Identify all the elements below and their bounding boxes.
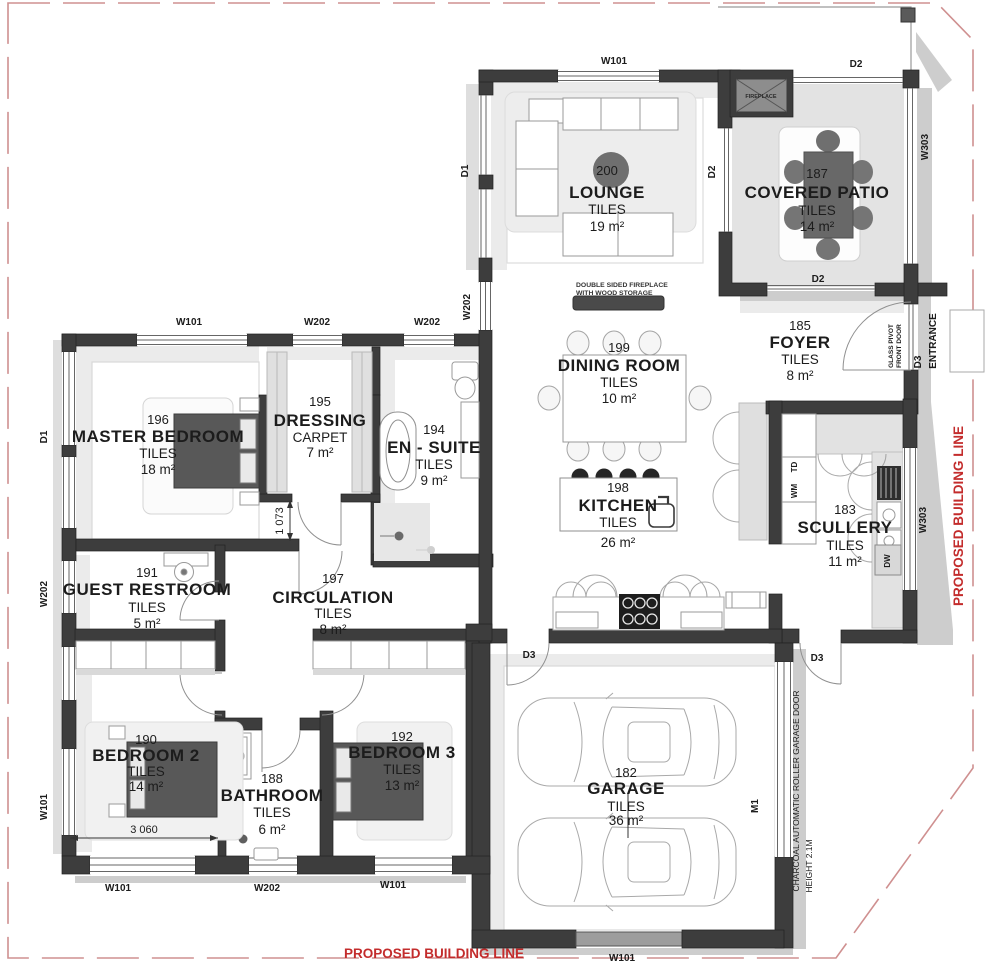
- svg-text:W101: W101: [380, 880, 407, 891]
- svg-text:11 m²: 11 m²: [828, 554, 862, 569]
- svg-text:TILES: TILES: [314, 606, 352, 621]
- svg-text:W101: W101: [39, 794, 50, 821]
- svg-text:W303: W303: [920, 134, 931, 161]
- svg-text:D3: D3: [811, 653, 824, 664]
- svg-text:200: 200: [596, 163, 618, 178]
- svg-text:191: 191: [136, 565, 158, 580]
- svg-text:TILES: TILES: [588, 202, 626, 217]
- svg-text:182: 182: [615, 765, 637, 780]
- svg-text:8 m²: 8 m²: [787, 368, 815, 383]
- svg-text:GUEST RESTROOM: GUEST RESTROOM: [63, 580, 232, 599]
- svg-text:W101: W101: [105, 883, 132, 894]
- svg-text:D2: D2: [707, 165, 718, 178]
- svg-text:LOUNGE: LOUNGE: [569, 183, 645, 202]
- svg-text:D3: D3: [523, 650, 536, 661]
- svg-text:183: 183: [834, 502, 856, 517]
- svg-text:185: 185: [789, 318, 811, 333]
- svg-text:BEDROOM 3: BEDROOM 3: [348, 743, 455, 762]
- svg-text:TILES: TILES: [781, 352, 819, 367]
- svg-text:DINING ROOM: DINING ROOM: [558, 356, 681, 375]
- svg-text:199: 199: [608, 340, 630, 355]
- svg-text:W303: W303: [918, 507, 929, 534]
- svg-text:CARPET: CARPET: [293, 430, 348, 445]
- svg-text:W101: W101: [601, 56, 628, 67]
- svg-text:WITH WOOD STORAGE: WITH WOOD STORAGE: [576, 290, 653, 297]
- svg-text:187: 187: [806, 166, 828, 181]
- svg-text:W202: W202: [39, 581, 50, 608]
- svg-text:CIRCULATION: CIRCULATION: [272, 588, 393, 607]
- svg-text:TILES: TILES: [253, 805, 291, 820]
- svg-text:TILES: TILES: [415, 457, 453, 472]
- svg-text:TD: TD: [790, 461, 799, 472]
- svg-text:195: 195: [309, 394, 331, 409]
- svg-text:TILES: TILES: [599, 515, 637, 530]
- svg-text:196: 196: [147, 412, 169, 427]
- svg-text:DOUBLE SIDED FIREPLACE: DOUBLE SIDED FIREPLACE: [576, 282, 668, 289]
- svg-text:3 060: 3 060: [130, 824, 158, 836]
- svg-text:HEIGHT 2.1M: HEIGHT 2.1M: [804, 839, 814, 892]
- svg-text:TILES: TILES: [798, 203, 836, 218]
- svg-text:198: 198: [607, 480, 629, 495]
- svg-text:D1: D1: [39, 430, 50, 443]
- svg-text:DRESSING: DRESSING: [274, 411, 367, 430]
- svg-text:14 m²: 14 m²: [800, 219, 835, 234]
- svg-text:MASTER BEDROOM: MASTER BEDROOM: [72, 427, 244, 446]
- svg-text:TILES: TILES: [127, 764, 165, 779]
- svg-text:7 m²: 7 m²: [307, 445, 335, 460]
- svg-text:BATHROOM: BATHROOM: [221, 786, 324, 805]
- svg-text:192: 192: [391, 729, 413, 744]
- svg-text:FOYER: FOYER: [769, 333, 830, 352]
- svg-text:FRONT DOOR: FRONT DOOR: [896, 324, 903, 368]
- svg-text:COVERED PATIO: COVERED PATIO: [745, 183, 890, 202]
- svg-text:TILES: TILES: [139, 446, 177, 461]
- svg-text:W202: W202: [254, 883, 281, 894]
- svg-text:TILES: TILES: [826, 538, 864, 553]
- svg-text:M1: M1: [750, 799, 761, 813]
- svg-text:10 m²: 10 m²: [602, 391, 637, 406]
- svg-text:DW: DW: [883, 554, 892, 568]
- svg-text:ENTRANCE: ENTRANCE: [928, 313, 939, 369]
- svg-text:5 m²: 5 m²: [134, 616, 162, 631]
- svg-text:197: 197: [322, 571, 344, 586]
- svg-text:W202: W202: [414, 317, 441, 328]
- svg-text:CHARCOAL AUTOMATIC ROLLER GARA: CHARCOAL AUTOMATIC ROLLER GARAGE DOOR: [791, 690, 801, 891]
- svg-text:D3: D3: [913, 355, 924, 368]
- svg-text:SCULLERY: SCULLERY: [798, 518, 893, 537]
- svg-text:194: 194: [423, 422, 445, 437]
- svg-text:19 m²: 19 m²: [590, 219, 625, 234]
- svg-text:W202: W202: [304, 317, 331, 328]
- svg-text:EN - SUITE: EN - SUITE: [387, 438, 481, 457]
- svg-text:9 m²: 9 m²: [421, 473, 449, 488]
- svg-text:14 m²: 14 m²: [129, 779, 164, 794]
- svg-text:36 m²: 36 m²: [609, 813, 644, 828]
- svg-text:W101: W101: [609, 953, 636, 964]
- svg-text:18 m²: 18 m²: [141, 462, 176, 477]
- svg-text:PROPOSED BUILDING LINE: PROPOSED BUILDING LINE: [344, 946, 524, 961]
- svg-text:26 m²: 26 m²: [601, 535, 636, 550]
- svg-text:GARAGE: GARAGE: [587, 779, 665, 798]
- svg-text:TILES: TILES: [600, 375, 638, 390]
- svg-text:KITCHEN: KITCHEN: [578, 496, 657, 515]
- svg-text:WM: WM: [790, 484, 799, 499]
- svg-text:190: 190: [135, 732, 157, 747]
- svg-text:13 m²: 13 m²: [385, 778, 420, 793]
- svg-text:D1: D1: [460, 164, 471, 177]
- svg-text:TILES: TILES: [383, 762, 421, 777]
- svg-text:TILES: TILES: [607, 799, 645, 814]
- svg-text:GLASS PIVOT: GLASS PIVOT: [888, 324, 895, 368]
- svg-text:1 073: 1 073: [274, 507, 286, 535]
- svg-text:FIREPLACE: FIREPLACE: [745, 94, 777, 100]
- svg-text:D2: D2: [850, 59, 863, 70]
- svg-text:W101: W101: [176, 317, 203, 328]
- svg-text:D2: D2: [812, 274, 825, 285]
- svg-text:TILES: TILES: [128, 600, 166, 615]
- svg-text:6 m²: 6 m²: [259, 822, 287, 837]
- svg-text:BEDROOM 2: BEDROOM 2: [92, 746, 199, 765]
- svg-text:PROPOSED BUILDING LINE: PROPOSED BUILDING LINE: [951, 426, 966, 606]
- svg-text:8 m²: 8 m²: [320, 622, 348, 637]
- svg-text:188: 188: [261, 771, 283, 786]
- svg-text:W202: W202: [462, 294, 473, 321]
